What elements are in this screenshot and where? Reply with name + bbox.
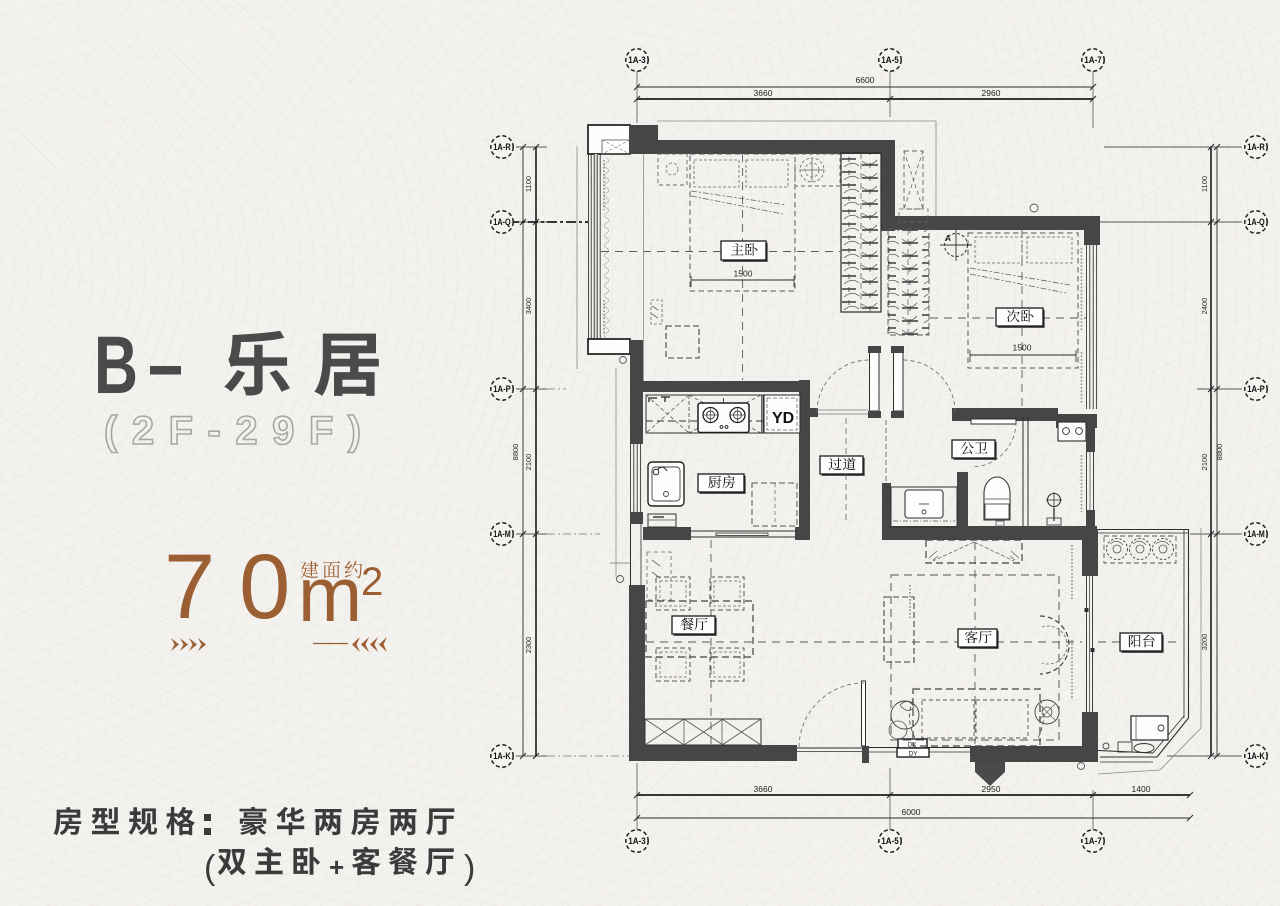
svg-text:YD: YD	[772, 410, 794, 427]
svg-text:(: (	[204, 849, 216, 887]
svg-text:6600: 6600	[856, 75, 875, 85]
svg-text:1A-Q: 1A-Q	[1247, 217, 1265, 228]
svg-text:DY: DY	[908, 751, 918, 758]
svg-text:m: m	[298, 552, 362, 638]
svg-text:8800: 8800	[511, 444, 520, 461]
svg-text:1400: 1400	[1132, 784, 1151, 794]
svg-text:+: +	[329, 852, 344, 882]
svg-text:1500: 1500	[734, 269, 753, 279]
svg-text:1A-7: 1A-7	[1084, 836, 1102, 847]
svg-text:1A-5: 1A-5	[881, 836, 899, 847]
svg-text:A: A	[945, 234, 951, 243]
svg-text:3400: 3400	[524, 298, 533, 315]
svg-text:1A-M: 1A-M	[1247, 529, 1265, 540]
svg-text:3660: 3660	[754, 784, 773, 794]
svg-text:(2F-29F): (2F-29F)	[104, 409, 376, 453]
svg-text:): )	[464, 849, 475, 887]
svg-text:B: B	[94, 320, 138, 411]
svg-text:1A-5: 1A-5	[881, 55, 899, 66]
svg-text:1A-3: 1A-3	[628, 55, 646, 66]
svg-text:1A-P: 1A-P	[1247, 384, 1265, 395]
svg-text:1100: 1100	[524, 176, 533, 192]
svg-text:2950: 2950	[982, 784, 1001, 794]
svg-text:70: 70	[164, 536, 314, 638]
svg-text:1A-3: 1A-3	[628, 836, 646, 847]
svg-text:1A-Q: 1A-Q	[493, 217, 511, 228]
svg-text:1A-7: 1A-7	[1084, 55, 1102, 66]
svg-text:1A-K: 1A-K	[1247, 751, 1265, 762]
svg-text:2100: 2100	[1200, 454, 1209, 471]
svg-text:3660: 3660	[754, 88, 773, 98]
svg-text:1A-R: 1A-R	[493, 142, 511, 153]
svg-text:6000: 6000	[902, 807, 921, 817]
svg-text:1A-M: 1A-M	[493, 529, 511, 540]
svg-text:1A-R: 1A-R	[1247, 142, 1265, 153]
svg-text:1100: 1100	[1200, 176, 1209, 192]
svg-text:1A-K: 1A-K	[493, 751, 511, 762]
svg-text:1A-P: 1A-P	[493, 384, 511, 395]
svg-text:1500: 1500	[1013, 343, 1032, 353]
svg-text:2300: 2300	[524, 637, 533, 654]
svg-text:2960: 2960	[982, 88, 1001, 98]
svg-text:2400: 2400	[1200, 298, 1209, 315]
svg-text:2100: 2100	[524, 454, 533, 471]
svg-text:8800: 8800	[1215, 444, 1224, 461]
svg-text:2: 2	[361, 560, 383, 604]
